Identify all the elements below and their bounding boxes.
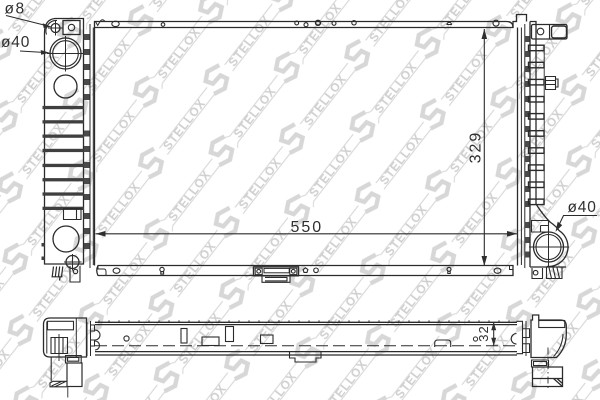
svg-text:329: 329 — [468, 131, 485, 164]
svg-text:32: 32 — [476, 325, 491, 341]
svg-text:ø8: ø8 — [5, 1, 26, 18]
svg-text:550: 550 — [291, 219, 324, 236]
svg-text:ø40: ø40 — [1, 34, 30, 51]
svg-text:ø40: ø40 — [568, 199, 597, 216]
